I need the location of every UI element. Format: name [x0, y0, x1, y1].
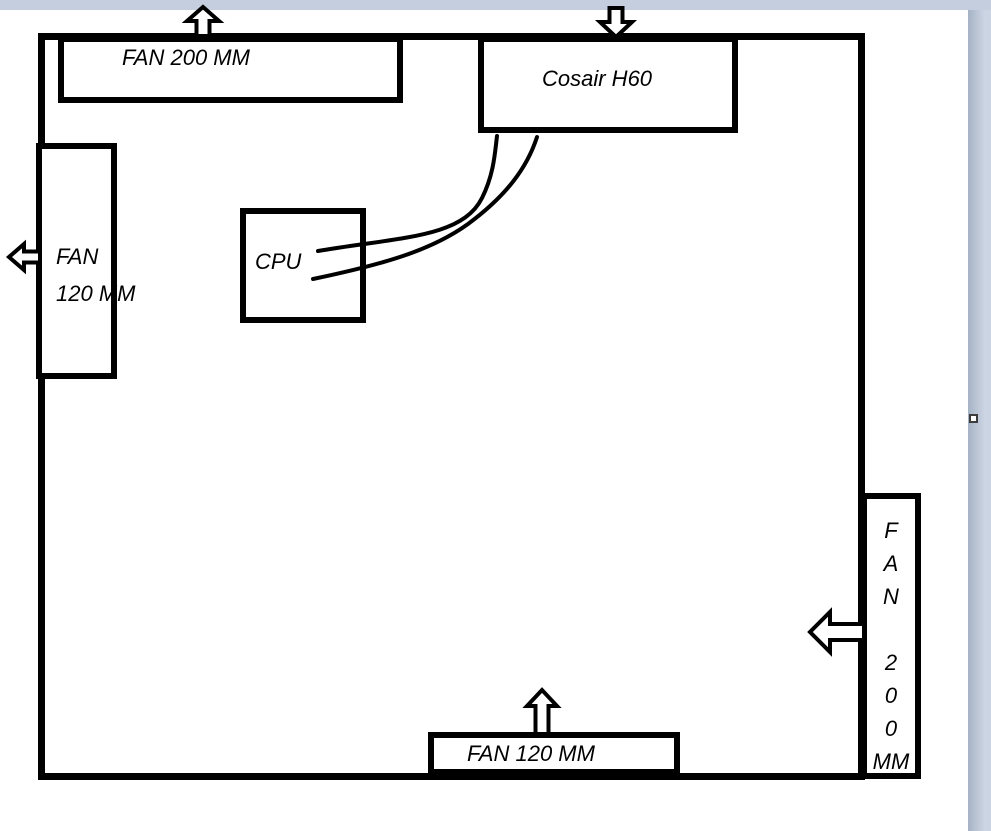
- arrow-up-icon[interactable]: [527, 690, 557, 734]
- arrow-up-icon[interactable]: [187, 7, 219, 36]
- arrow-left-icon[interactable]: [810, 612, 864, 652]
- cooler-tube-curve[interactable]: [318, 136, 497, 251]
- document-page: FAN 200 MM Cosair H60 FAN 120 MM CPU FAN…: [0, 0, 991, 831]
- arrow-left-icon[interactable]: [9, 244, 40, 270]
- cooler-tube-curve[interactable]: [313, 137, 537, 279]
- shapes-overlay: [0, 0, 991, 831]
- arrow-down-icon[interactable]: [600, 8, 632, 37]
